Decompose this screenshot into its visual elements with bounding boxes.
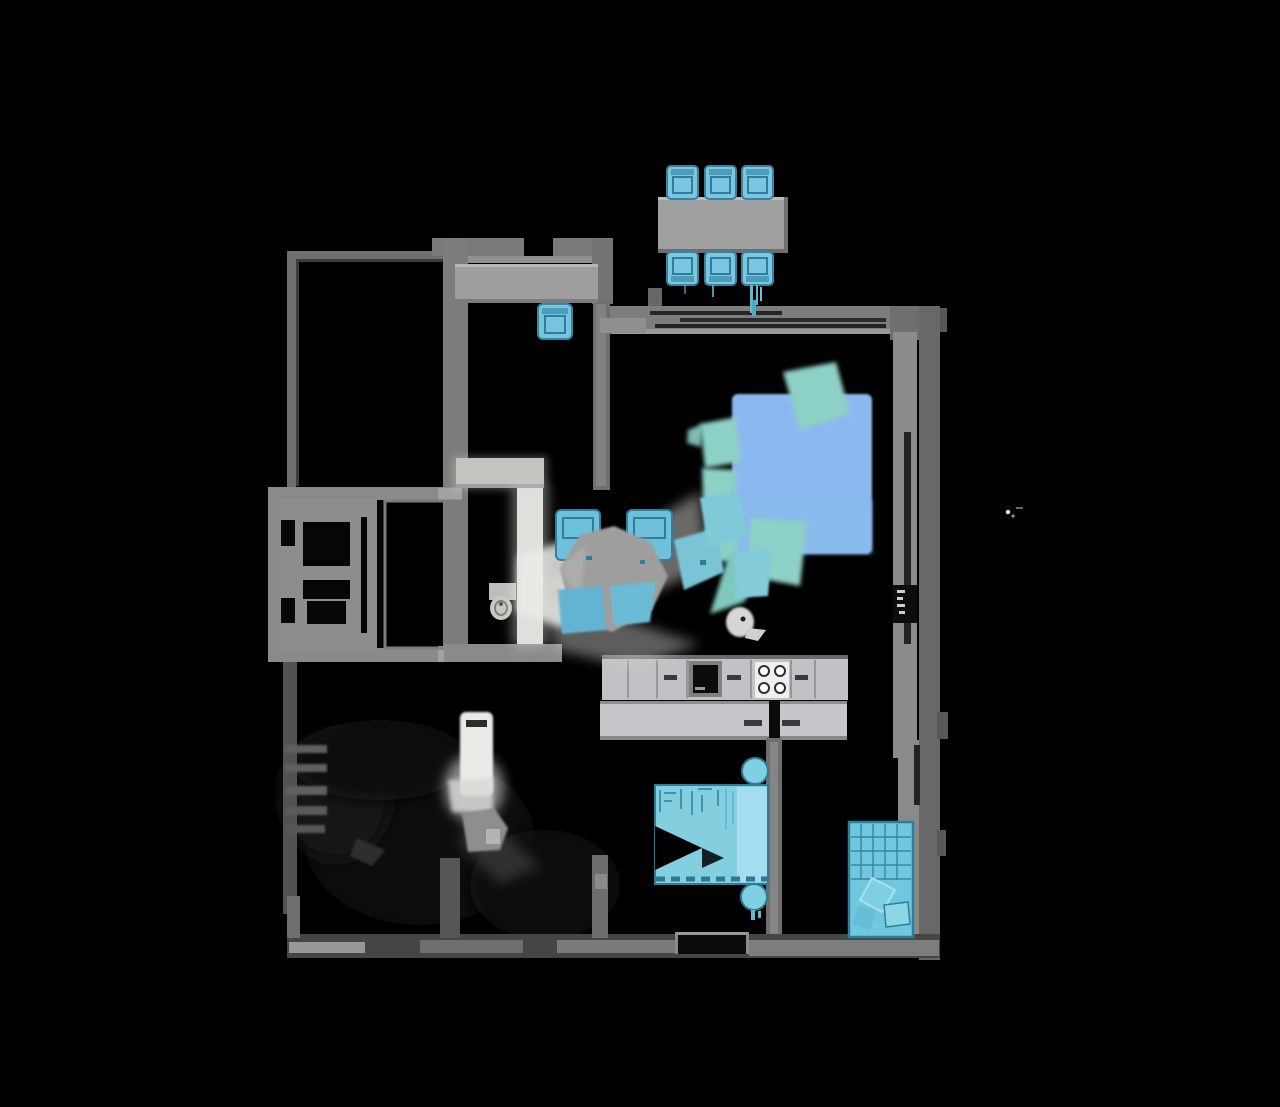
heater-slot bbox=[466, 720, 487, 727]
floor-plan-svg[interactable] bbox=[0, 0, 1280, 1107]
shelf-bar-3 bbox=[285, 786, 327, 795]
sofa-patch-left-1 bbox=[700, 417, 741, 468]
top-window-slit-1 bbox=[650, 311, 782, 315]
stove-burner-2 bbox=[775, 666, 785, 676]
stub-wall-left bbox=[440, 858, 460, 938]
storage-cut-2 bbox=[303, 580, 350, 599]
bottom-door-recess-top bbox=[675, 932, 749, 935]
dining-chair-1-back bbox=[671, 169, 694, 175]
teal-speck-1 bbox=[586, 556, 592, 560]
dining-chair-5-back bbox=[709, 276, 732, 282]
dresser-glow bbox=[452, 456, 548, 490]
right-wall-lower-outer bbox=[919, 735, 940, 960]
stub-wall-right bbox=[592, 855, 608, 938]
shelf-bar-5 bbox=[285, 825, 325, 833]
nightstand-top bbox=[742, 758, 768, 784]
stove-burner-4 bbox=[775, 683, 785, 693]
dining-table-right-edge bbox=[784, 197, 788, 253]
counter-seam-6 bbox=[814, 660, 816, 698]
storage-cut-1 bbox=[303, 522, 350, 566]
chair-drip-4 bbox=[712, 285, 714, 297]
speck-gray bbox=[1012, 515, 1015, 518]
corner-tl-light bbox=[600, 318, 646, 333]
office-desk bbox=[455, 264, 598, 303]
break-dash-1 bbox=[897, 590, 905, 593]
break-dash-3 bbox=[897, 604, 905, 607]
table-chair-bottom-right bbox=[610, 582, 656, 626]
teal-speck-2 bbox=[640, 560, 645, 564]
right-step-2 bbox=[937, 830, 946, 856]
storage-cut-3 bbox=[307, 601, 346, 624]
left-bottom-corner bbox=[287, 896, 300, 938]
counter-seam-4 bbox=[750, 660, 752, 698]
island-bottom-edge bbox=[600, 736, 847, 740]
chair-drip-6 bbox=[752, 300, 756, 316]
bottom-wall-seg-4 bbox=[749, 940, 939, 956]
hall-bottom-wall bbox=[444, 644, 562, 662]
teal-patch-3 bbox=[734, 548, 772, 598]
oven-handle bbox=[695, 687, 705, 690]
dining-chair-4-back bbox=[671, 276, 694, 282]
bottom-wall-seg-3 bbox=[557, 940, 676, 953]
bedroom-divider-inner bbox=[770, 742, 778, 934]
terrace-rail-left bbox=[287, 251, 296, 487]
storage-notch-1 bbox=[281, 520, 295, 546]
gray-hexagon-inner bbox=[486, 829, 500, 844]
counter-handle-1 bbox=[664, 675, 677, 680]
counter-seam-5 bbox=[790, 660, 792, 698]
shelf-bar-1 bbox=[285, 745, 327, 753]
teal-speck-3 bbox=[700, 560, 706, 565]
chair-drip-5 bbox=[684, 285, 686, 294]
right-lower-window-slit bbox=[914, 745, 920, 805]
chair-drip-2 bbox=[756, 285, 758, 305]
stub-wall-right-cap bbox=[595, 874, 607, 889]
bottom-door-recess-left bbox=[675, 933, 678, 954]
island-handle-2 bbox=[782, 720, 800, 726]
island-handle-1 bbox=[744, 720, 762, 726]
counter-seam-2 bbox=[656, 660, 658, 698]
storage-slit bbox=[361, 517, 367, 633]
bottom-wall-seg-2 bbox=[420, 940, 523, 953]
toilet-dot bbox=[499, 602, 503, 606]
storage-outer-top bbox=[268, 487, 462, 500]
terrace-rail-top-inner bbox=[293, 259, 443, 262]
floor-plan-viewport[interactable] bbox=[0, 0, 1280, 1107]
terrace-rail-left-inner bbox=[296, 260, 299, 486]
toilet-bowl bbox=[490, 596, 512, 620]
dining-chair-2-back bbox=[709, 169, 732, 175]
bed-blanket bbox=[737, 787, 767, 882]
terrace-rail-top bbox=[287, 251, 445, 259]
bathtub-towel-rect bbox=[884, 902, 910, 927]
counter-handle-3 bbox=[795, 675, 808, 680]
table-chair-bottom-left bbox=[558, 586, 606, 634]
office-desk-bottom-edge bbox=[455, 299, 598, 303]
right-step-1 bbox=[937, 712, 948, 739]
storage-notch-2 bbox=[281, 598, 295, 623]
sofa-patch-small bbox=[687, 424, 703, 447]
bottom-door-recess bbox=[675, 933, 749, 954]
bottom-wall-seg-1 bbox=[289, 942, 365, 953]
storage-outer-left bbox=[268, 487, 280, 662]
break-dash-2 bbox=[897, 597, 903, 600]
living-top-wall-light bbox=[612, 329, 892, 334]
heater-foot bbox=[448, 778, 493, 812]
stove-burner-3 bbox=[759, 683, 769, 693]
right-wall-outer bbox=[919, 306, 940, 758]
speck-dash bbox=[1016, 507, 1023, 509]
nightstand-drip-1 bbox=[751, 910, 755, 920]
teal-patch-2 bbox=[700, 492, 748, 548]
stove-burner-1 bbox=[759, 666, 769, 676]
nightstand-drip-2 bbox=[758, 911, 761, 918]
nightstand-bottom bbox=[741, 884, 767, 910]
top-window-slit-2 bbox=[680, 318, 886, 322]
island-gap bbox=[769, 701, 780, 740]
pet-bowl-dot bbox=[741, 617, 746, 622]
shelf-bar-2 bbox=[285, 764, 327, 772]
shelf-bar-4 bbox=[285, 806, 327, 815]
office-desk-top-edge bbox=[455, 264, 598, 267]
storage-outer-bottom bbox=[268, 648, 462, 662]
island-top-edge bbox=[600, 701, 847, 704]
living-top-wall-stub bbox=[648, 288, 662, 306]
speck-white bbox=[1006, 510, 1010, 514]
counter-seam-3 bbox=[686, 660, 689, 698]
dining-chair-3-back bbox=[746, 169, 769, 175]
dining-table bbox=[658, 197, 788, 253]
chair-drip-3 bbox=[760, 287, 762, 301]
pet-bowl-tail bbox=[745, 628, 766, 641]
screen: { "canvas": {"width": 1280, "height": 11… bbox=[0, 0, 1280, 1107]
kitchen-island bbox=[600, 704, 847, 738]
counter-handle-2 bbox=[727, 675, 741, 680]
office-top-wall-inner bbox=[448, 256, 612, 263]
bottom-door-recess-right bbox=[746, 933, 749, 954]
dining-chair-6-back bbox=[746, 276, 769, 282]
top-window-slit-3 bbox=[655, 324, 886, 328]
office-chair-back bbox=[542, 308, 568, 314]
break-dash-4 bbox=[899, 611, 905, 614]
